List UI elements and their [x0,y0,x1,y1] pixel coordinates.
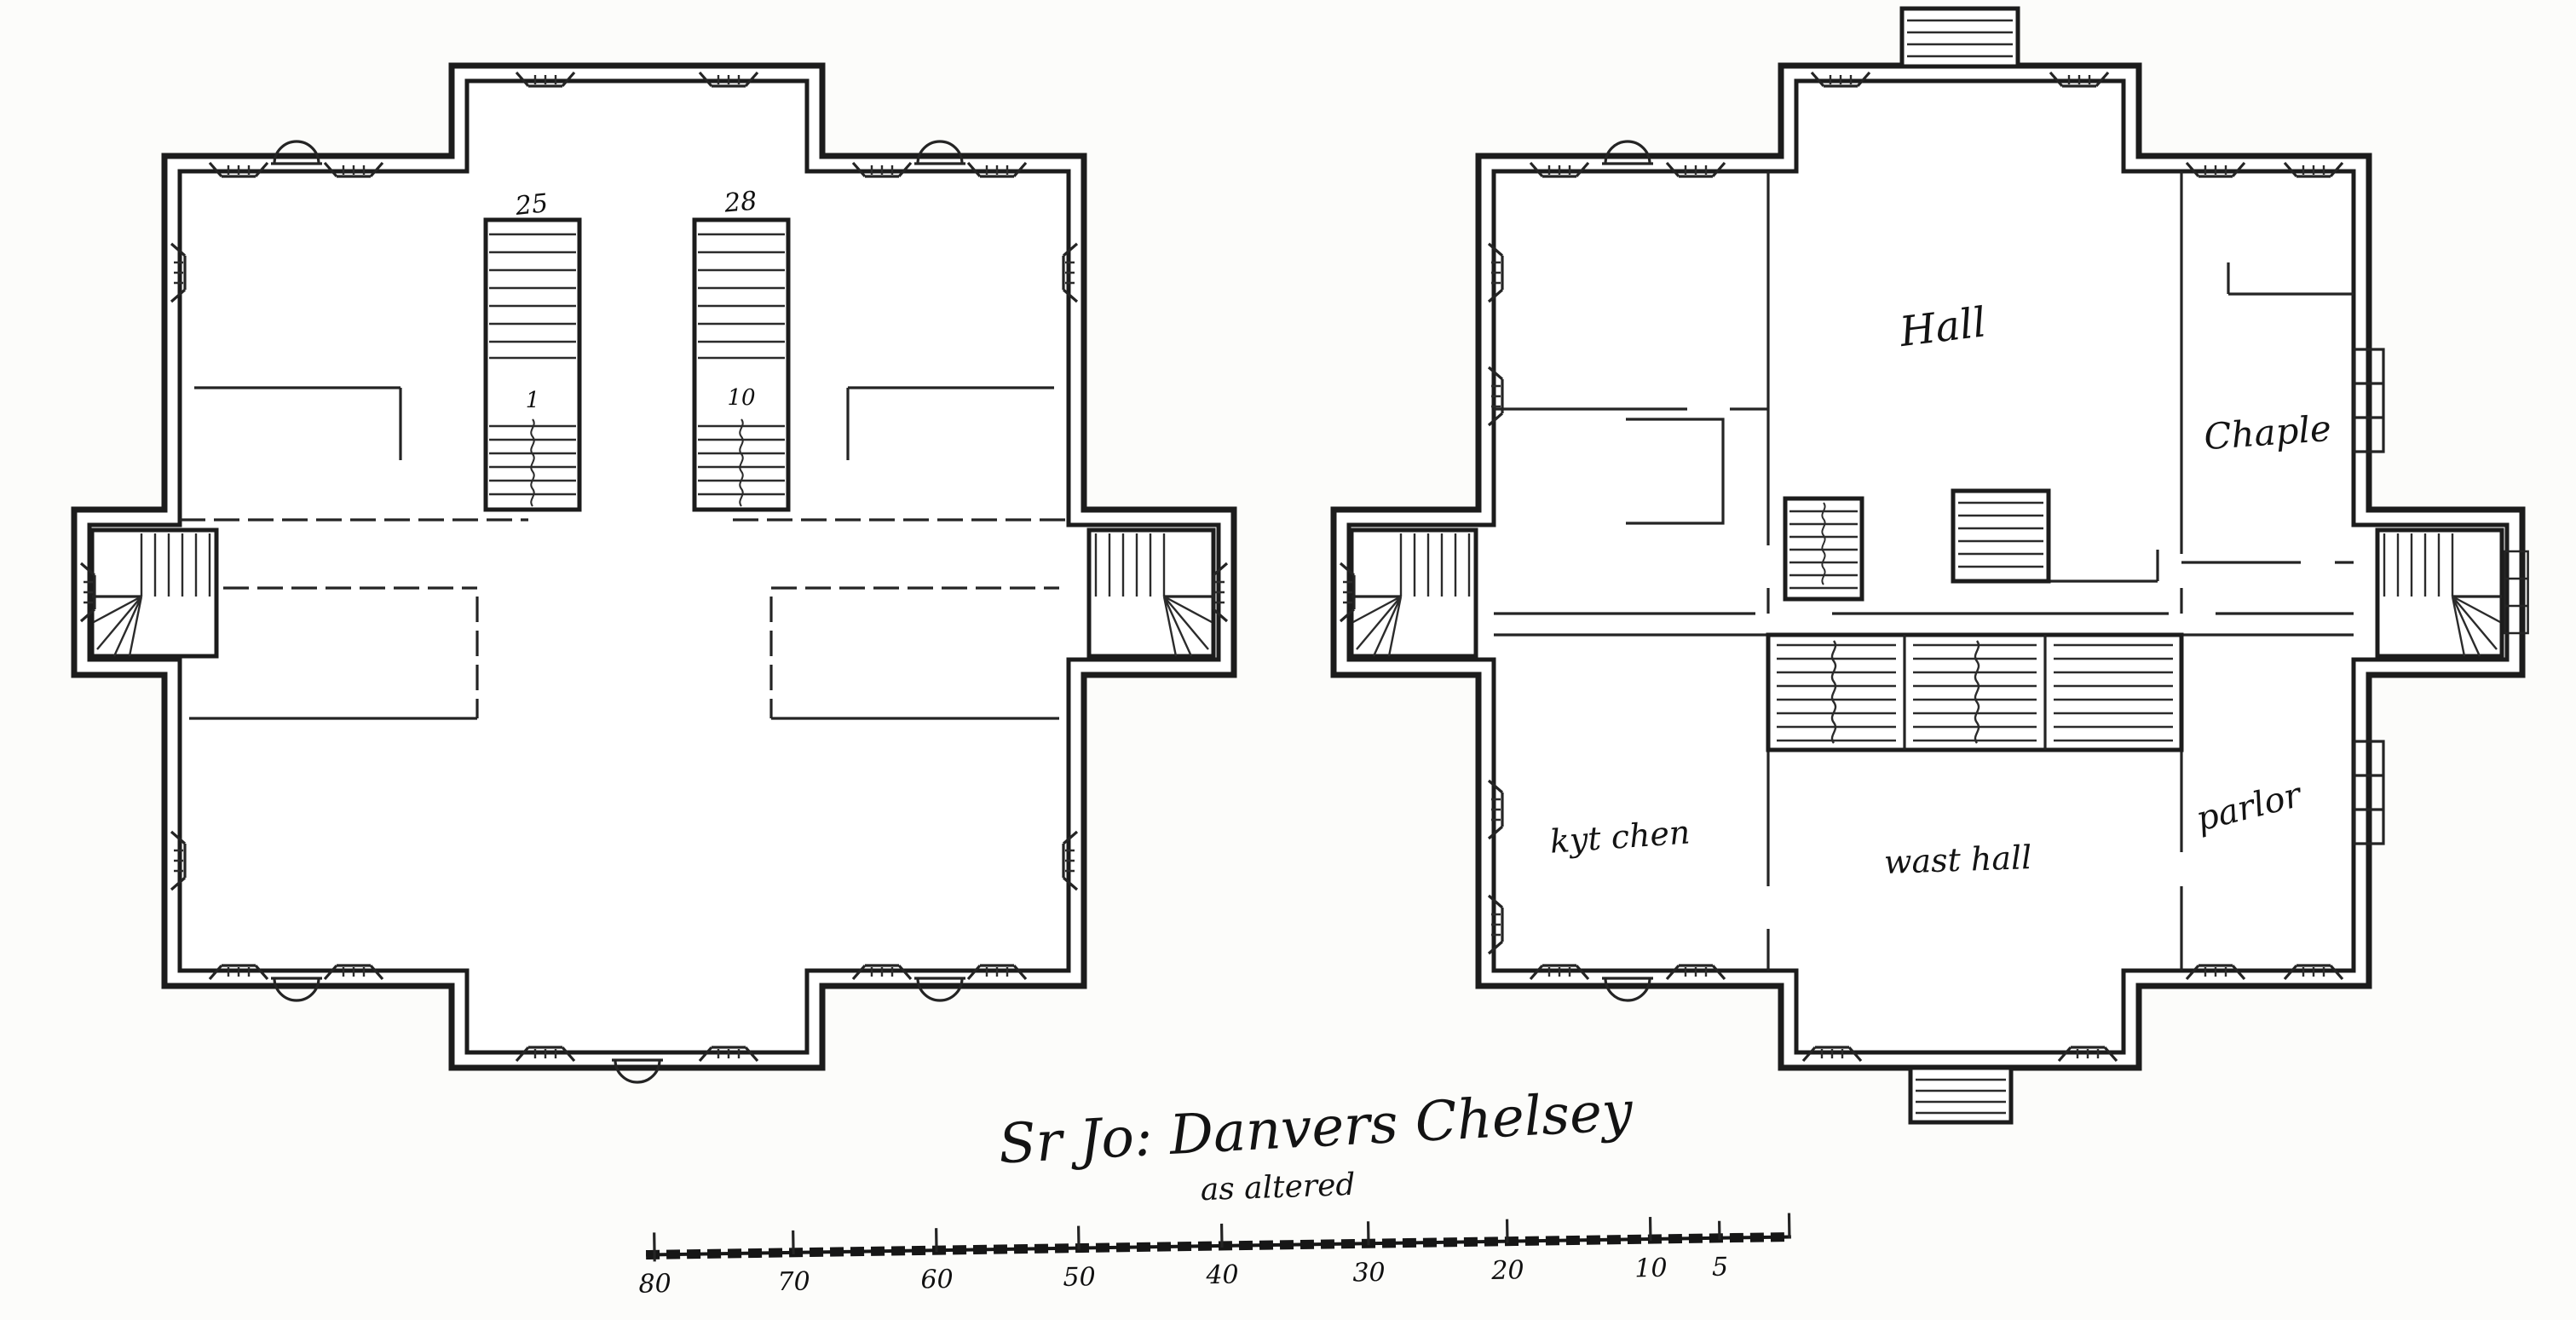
scale-bar: 80 70 60 50 40 30 20 10 5 [638,1213,1792,1299]
scanned-floor-plan-sheet: 25 28 1 10 [0,0,2576,1320]
stair-count-left: 25 [513,188,550,222]
right-plan-great-stairs [1768,635,2181,750]
room-label-waste-hall: wast hall [1883,839,2032,881]
scale-bar-labels: 80 70 60 50 40 30 20 10 5 [638,1253,1728,1300]
floor-plan-right: Hall Chaple parlor kyt chen wast hall [1334,9,2528,1122]
scale-label-20: 20 [1490,1255,1524,1286]
room-label-chapel: Chaple [2203,407,2332,458]
right-plan-walls [1334,66,2522,1068]
scale-label-50: 50 [1063,1262,1096,1293]
scale-label-30: 30 [1352,1258,1386,1288]
floor-plan-left: 25 28 1 10 [74,66,1234,1082]
left-plan-walls [74,66,1234,1068]
caption-title: Sr Jo: Danvers Chelsey [997,1081,1634,1177]
stair-count-right: 28 [723,186,758,218]
scale-label-40: 40 [1205,1260,1239,1291]
stair-landing-left: 1 [526,388,540,413]
scale-label-60: 60 [920,1265,954,1295]
scale-label-10: 10 [1634,1254,1668,1284]
scale-label-80: 80 [638,1269,671,1300]
plan-drawing: 25 28 1 10 [0,0,2576,1320]
caption: Sr Jo: Danvers Chelsey as altered [997,1081,1634,1208]
stair-landing-right: 10 [727,385,755,411]
scale-label-70: 70 [777,1267,810,1298]
caption-subtitle: as altered [1200,1167,1356,1208]
scale-label-5: 5 [1712,1253,1729,1283]
